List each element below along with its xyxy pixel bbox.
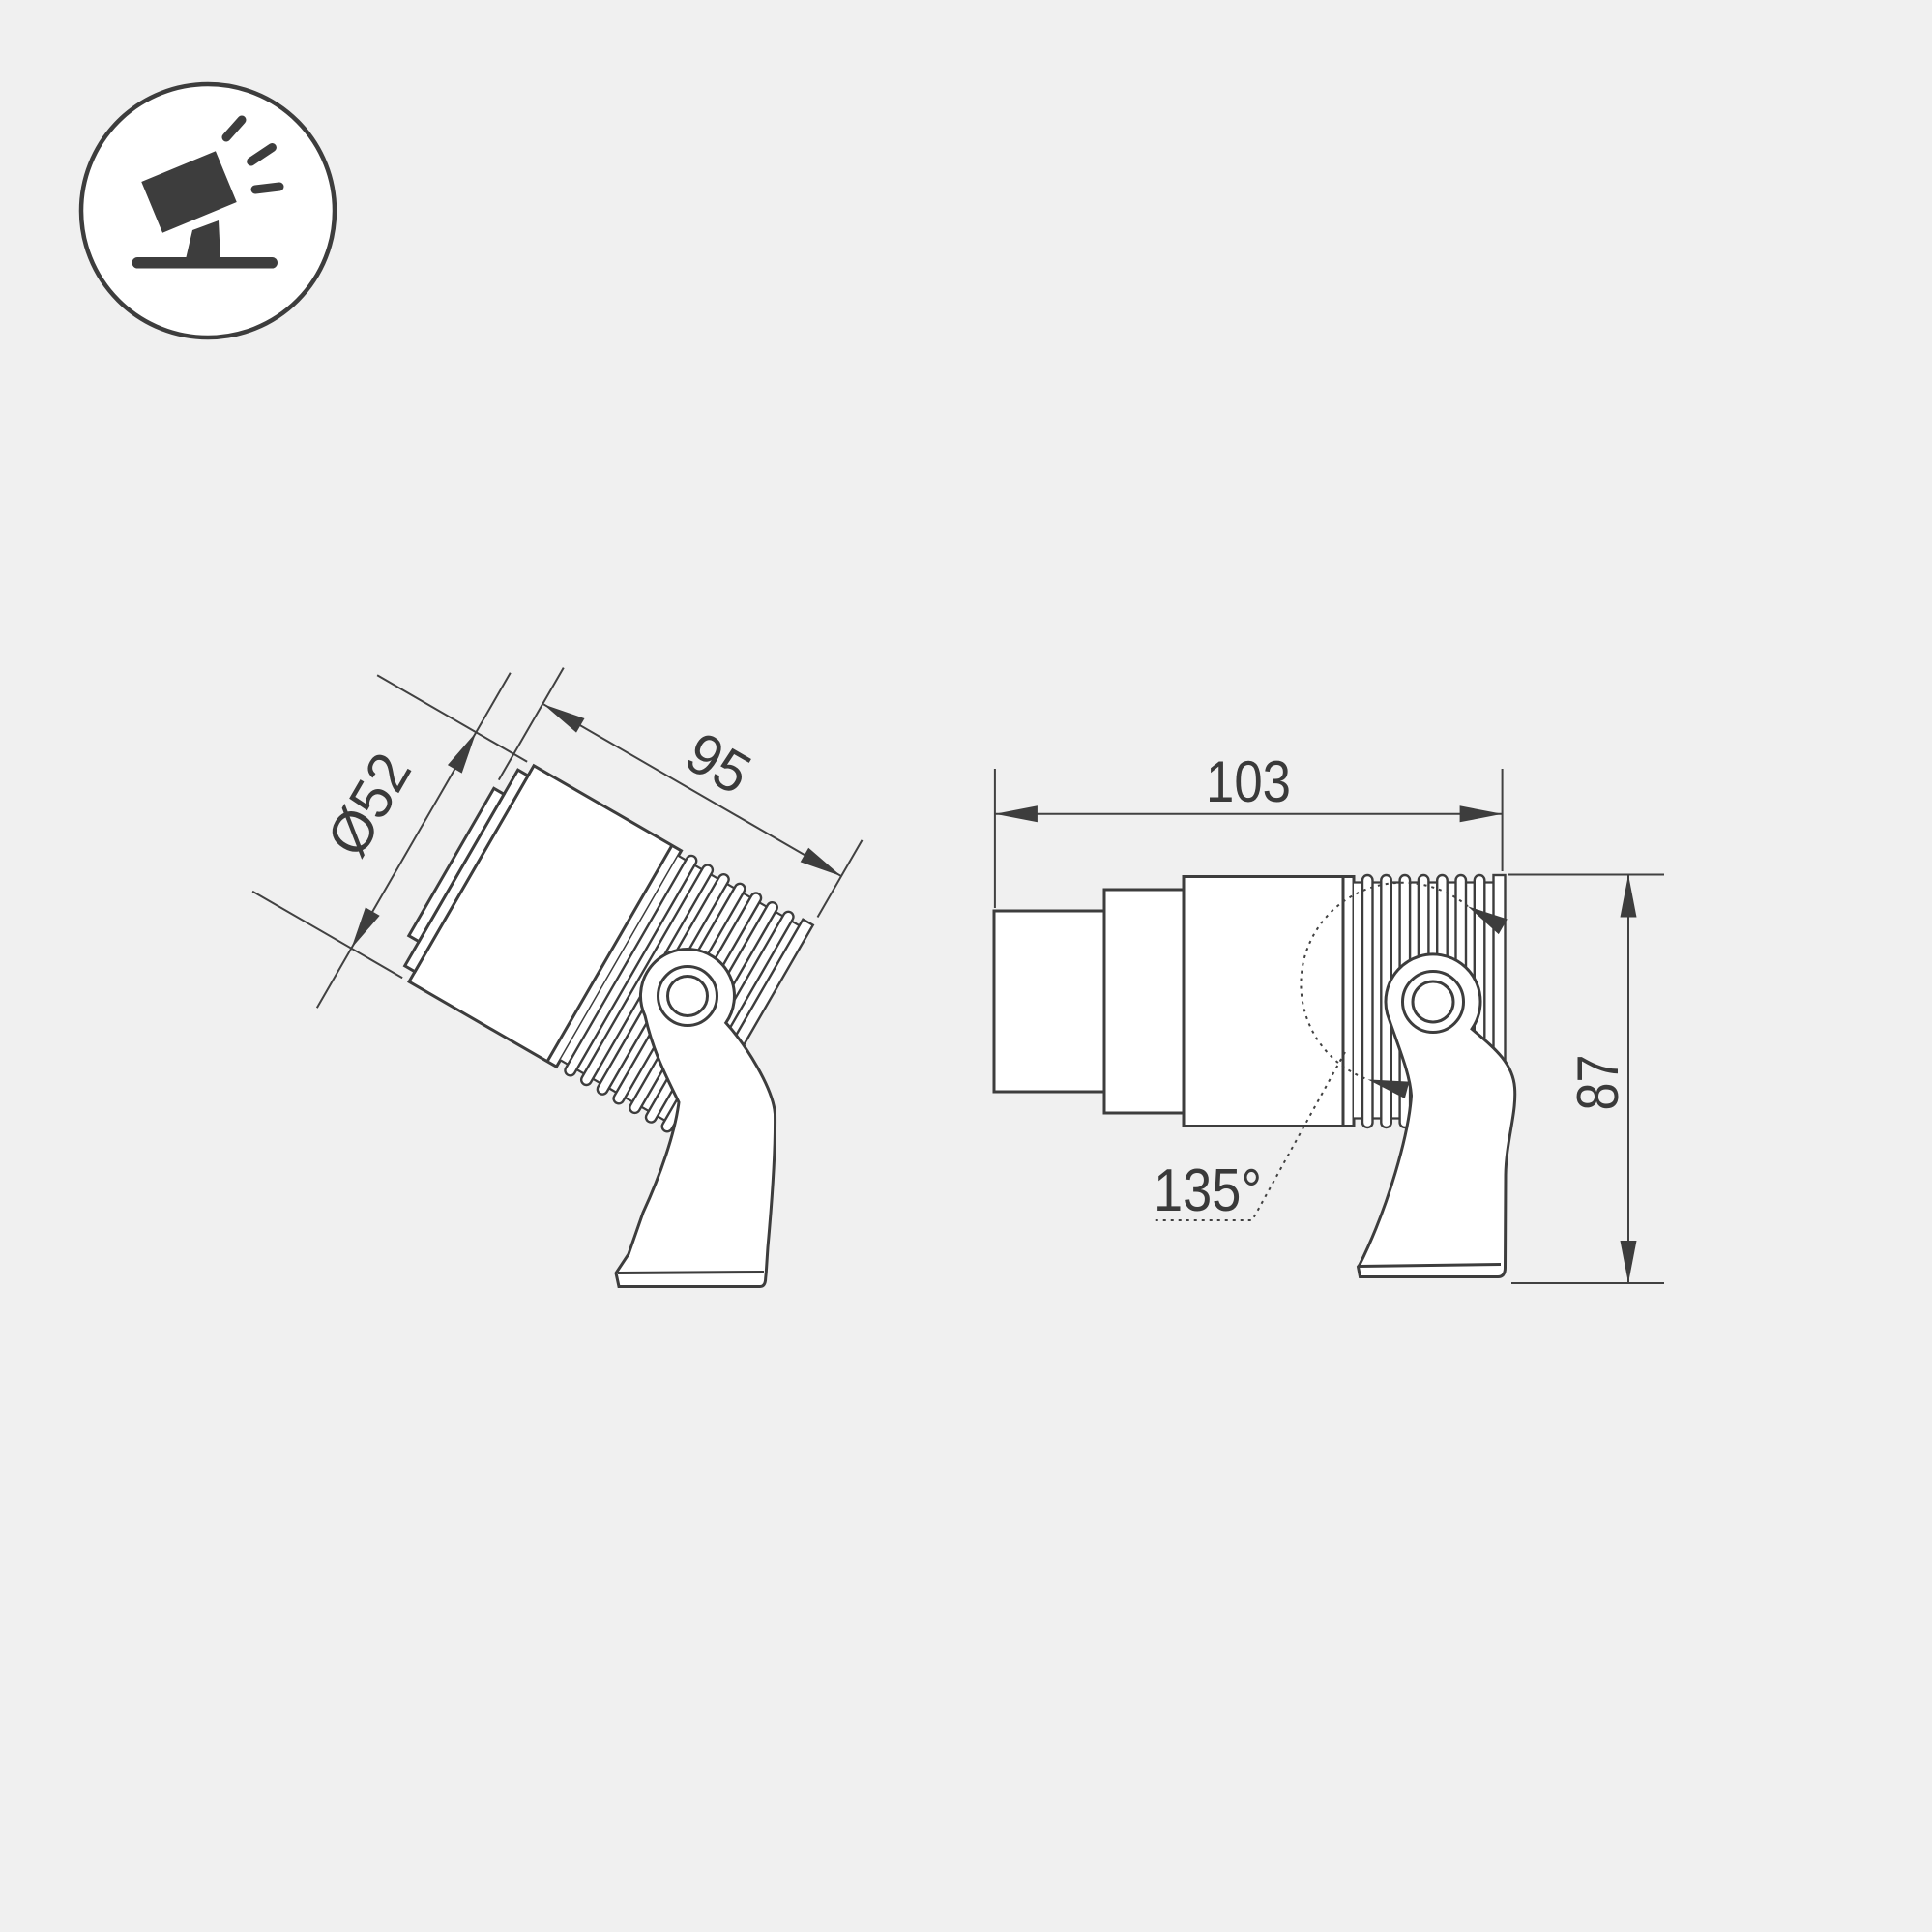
svg-text:135°: 135° [1154, 1157, 1262, 1224]
svg-text:87: 87 [1566, 1055, 1630, 1111]
svg-text:103: 103 [1206, 749, 1291, 814]
